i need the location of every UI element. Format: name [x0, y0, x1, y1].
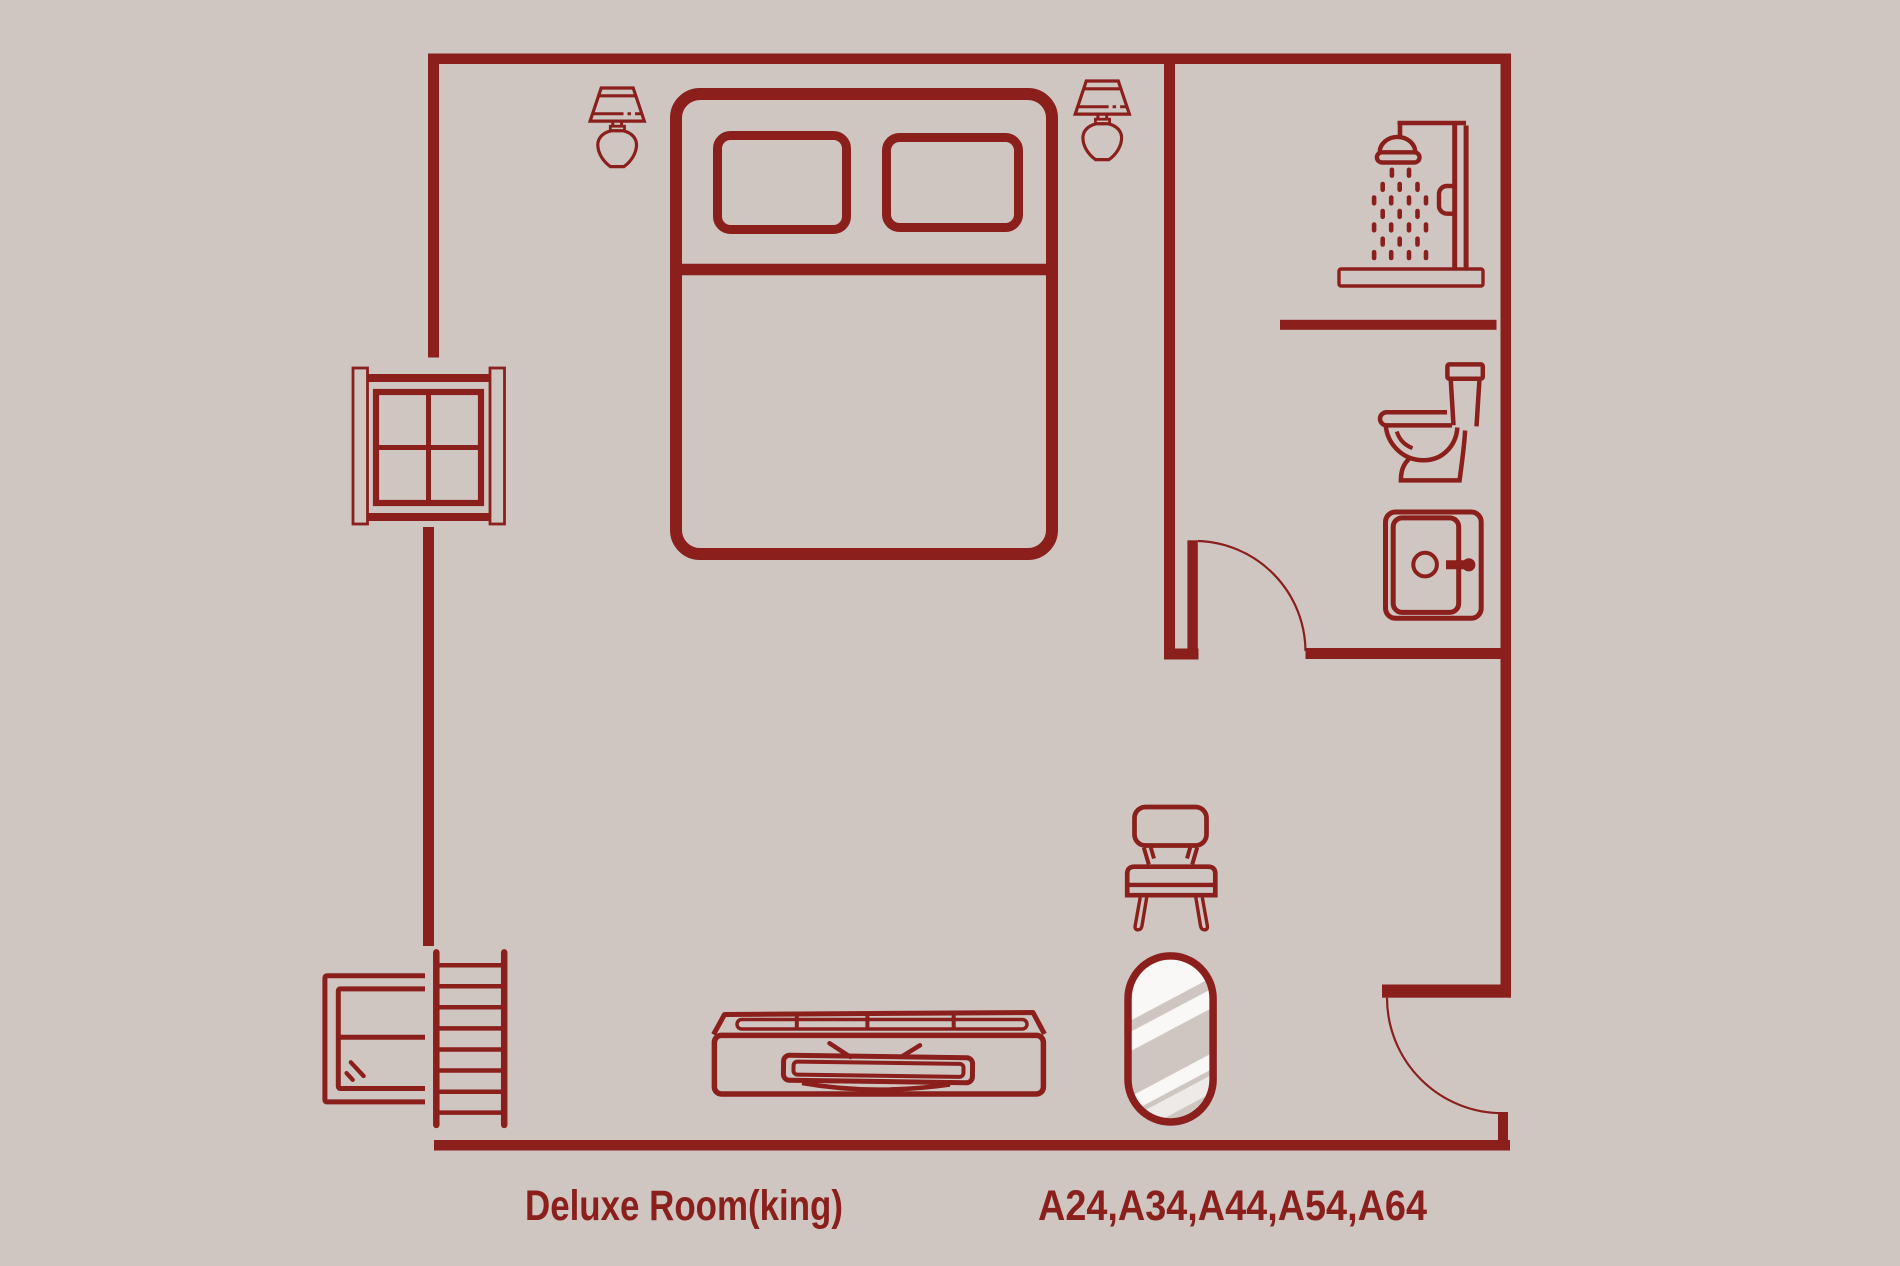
- svg-text:Deluxe Room(king): Deluxe Room(king): [525, 1182, 843, 1230]
- svg-text:A24,A34,A44,A54,A64: A24,A34,A44,A54,A64: [1038, 1182, 1427, 1230]
